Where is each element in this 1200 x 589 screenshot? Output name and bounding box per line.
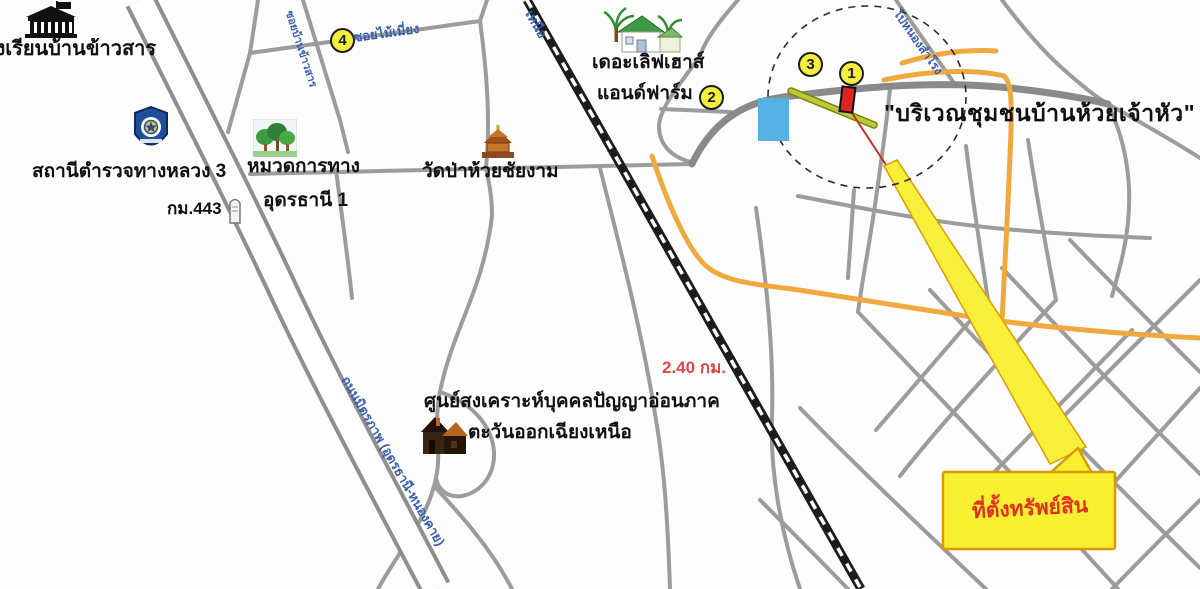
km-milestone-icon bbox=[227, 195, 243, 225]
temple-icon bbox=[478, 124, 518, 160]
km443-label: กม.443 bbox=[167, 200, 222, 219]
welfare-center-label-line1: ศูนย์สงเคราะห์บุคคลปัญญาอ่อนภาค bbox=[424, 392, 720, 413]
distance-label: 2.40 กม. bbox=[662, 359, 726, 378]
school-icon bbox=[20, 1, 82, 39]
highway-district-label-line2: อุดรธานี 1 bbox=[263, 191, 348, 212]
love-house-farm-icon bbox=[602, 4, 686, 58]
community-quote-label: "บริเวณชุมชนบ้านห้วยเจ้าหัว" bbox=[884, 101, 1195, 126]
temple-label: วัดป่าห้วยชัยงาม bbox=[422, 162, 559, 183]
orange-roads bbox=[652, 51, 1200, 339]
police-station-label: สถานีตำรวจทางหลวง 3 bbox=[32, 162, 226, 183]
property-marker bbox=[839, 86, 855, 112]
marker-badge-3: 3 bbox=[798, 52, 823, 77]
school-label: โรงเรียนบ้านข้าวสาร bbox=[0, 38, 156, 60]
access-road-olive bbox=[791, 91, 874, 125]
police-badge-icon bbox=[133, 106, 169, 156]
map-canvas: 4 2 3 1 โรงเรียนบ้านข้าวสาร สถานีตำรวจทา… bbox=[0, 0, 1200, 589]
highway-mittraphap bbox=[140, 0, 436, 589]
welfare-center-icon bbox=[420, 412, 470, 460]
trees-icon bbox=[253, 119, 297, 157]
marker-badge-2: 2 bbox=[699, 85, 724, 110]
railway-line bbox=[527, 0, 861, 589]
love-house-label-line2: แอนด์ฟาร์ม bbox=[597, 84, 693, 105]
welfare-center-label-line2: ตะวันออกเฉียงเหนือ bbox=[468, 423, 632, 444]
love-house-label-line1: เดอะเลิฟเฮาส์ bbox=[592, 53, 704, 74]
pond-blue-rect bbox=[758, 98, 789, 141]
marker-badge-1: 1 bbox=[839, 61, 864, 86]
highway-district-label-line1: หมวดการทาง bbox=[247, 157, 360, 178]
marker-badge-4: 4 bbox=[330, 28, 355, 53]
